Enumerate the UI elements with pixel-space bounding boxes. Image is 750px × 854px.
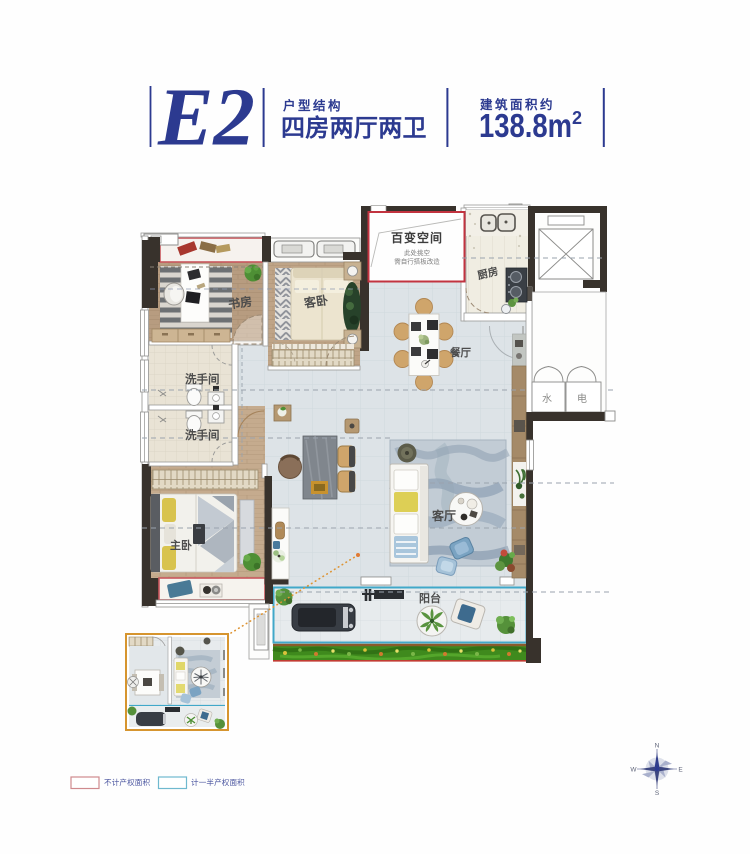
svg-text:此处挑空: 此处挑空	[404, 248, 431, 257]
svg-text:餐厅: 餐厅	[449, 346, 471, 359]
svg-text:E2: E2	[157, 71, 255, 163]
svg-text:电: 电	[577, 392, 587, 405]
svg-text:洗手间: 洗手间	[185, 428, 220, 442]
svg-text:W: W	[630, 767, 637, 774]
svg-text:需自行搭板改造: 需自行搭板改造	[394, 257, 440, 266]
svg-text:不计产权面积: 不计产权面积	[104, 777, 150, 787]
svg-text:洗手间: 洗手间	[185, 372, 220, 386]
svg-text:计一半产权面积: 计一半产权面积	[191, 777, 245, 787]
svg-text:S: S	[655, 790, 660, 797]
svg-text:水: 水	[542, 393, 552, 405]
svg-text:四房两厅两卫: 四房两厅两卫	[281, 114, 427, 142]
svg-text:百变空间: 百变空间	[391, 230, 443, 245]
svg-text:E: E	[678, 767, 683, 774]
svg-text:客厅: 客厅	[431, 508, 456, 523]
svg-text:138.8m2: 138.8m2	[479, 107, 582, 144]
svg-text:主卧: 主卧	[170, 538, 192, 552]
svg-text:N: N	[655, 743, 660, 750]
svg-text:户型结构: 户型结构	[283, 98, 343, 113]
svg-text:阳台: 阳台	[419, 591, 441, 605]
